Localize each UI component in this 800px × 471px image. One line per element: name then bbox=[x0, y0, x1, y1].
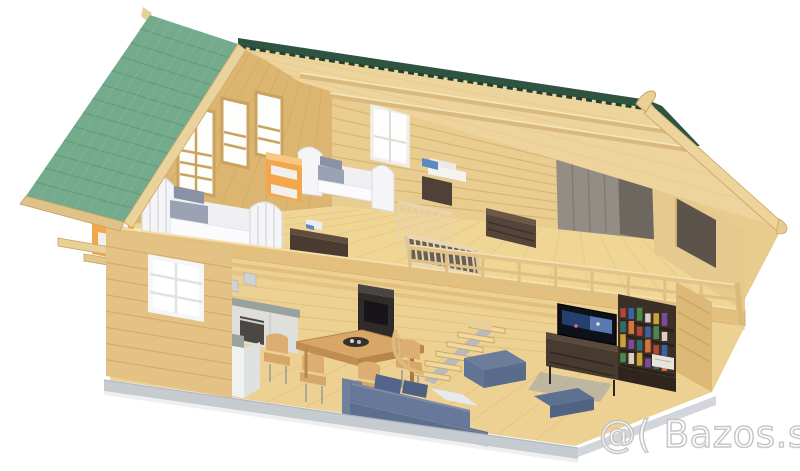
ground-window bbox=[148, 254, 204, 322]
render-canvas: @( Bazos.sk bbox=[0, 0, 800, 471]
attic-wall-window bbox=[372, 106, 408, 166]
cabin-render bbox=[0, 0, 800, 471]
gable-window-3 bbox=[256, 92, 282, 160]
watermark: @( Bazos.sk bbox=[599, 413, 799, 456]
gable-window-2 bbox=[222, 98, 248, 168]
bookshelf bbox=[618, 294, 676, 392]
left-wall bbox=[106, 228, 232, 398]
fruit-bowl bbox=[343, 337, 369, 347]
nightstand-2 bbox=[266, 152, 302, 202]
